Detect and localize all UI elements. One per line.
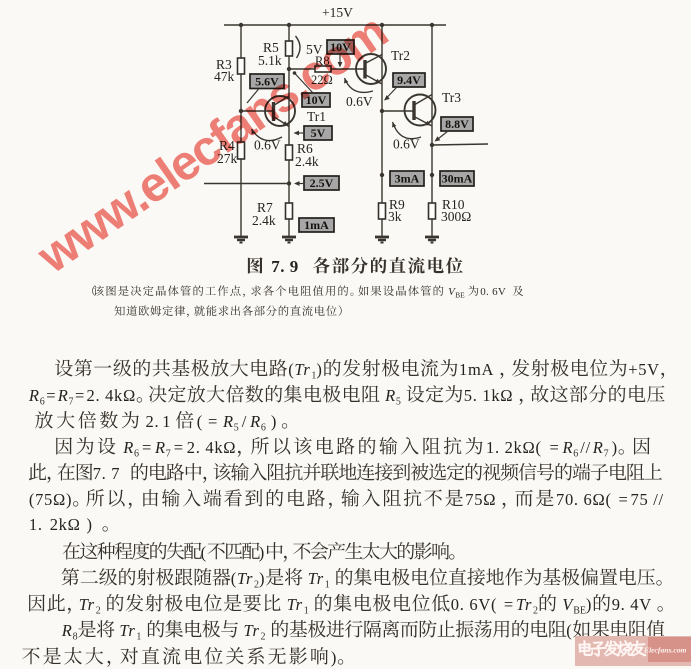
svg-text:Tr: Tr	[516, 595, 532, 614]
svg-text:R: R	[57, 386, 69, 405]
svg-text:8: 8	[73, 632, 78, 643]
svg-text:30mA: 30mA	[442, 172, 473, 186]
svg-text:Elecfans.com: Elecfans.com	[643, 646, 686, 655]
svg-text:5. 1kΩ: 5. 1kΩ	[464, 386, 513, 405]
svg-text:Tr: Tr	[287, 595, 303, 614]
svg-text:=: =	[208, 412, 218, 431]
svg-text:1. 2kΩ(: 1. 2kΩ(	[486, 438, 542, 457]
svg-text:7: 7	[604, 449, 609, 460]
svg-text:Tr3: Tr3	[442, 90, 461, 105]
svg-text:75Ω: 75Ω	[465, 490, 496, 509]
svg-text:Tr1: Tr1	[307, 109, 326, 124]
svg-text:R: R	[562, 438, 574, 457]
svg-text:=: =	[619, 490, 629, 509]
svg-text:(: (	[197, 412, 203, 431]
svg-text:): )	[316, 360, 322, 379]
svg-text:R: R	[384, 386, 396, 405]
svg-text:): )	[87, 515, 93, 534]
svg-text:Tr: Tr	[119, 621, 135, 640]
svg-text:=: =	[142, 438, 152, 457]
svg-text:R: R	[249, 412, 261, 431]
svg-text:=: =	[504, 595, 514, 614]
svg-text:R: R	[154, 438, 166, 457]
svg-text:(: (	[201, 543, 207, 562]
svg-text:70. 6Ω(: 70. 6Ω(	[556, 490, 612, 509]
svg-text:BE: BE	[455, 291, 465, 300]
svg-text:7: 7	[69, 397, 74, 408]
svg-text:=: =	[75, 386, 85, 405]
svg-text:6: 6	[40, 397, 45, 408]
svg-text:Tr: Tr	[79, 595, 95, 614]
svg-text:Tr: Tr	[244, 621, 260, 640]
svg-text:2: 2	[96, 606, 101, 617]
svg-text:1mA: 1mA	[304, 218, 329, 232]
svg-text:3k: 3k	[388, 209, 402, 224]
svg-text:2. 4kΩ: 2. 4kΩ	[187, 438, 236, 457]
svg-text:(: (	[566, 621, 572, 640]
svg-text://: //	[580, 438, 591, 457]
svg-text:Tr: Tr	[237, 569, 253, 588]
svg-text:1: 1	[325, 580, 330, 591]
svg-text:R: R	[61, 621, 73, 640]
svg-text:75 //: 75 //	[631, 490, 664, 509]
svg-text:R: R	[28, 386, 40, 405]
svg-text:): )	[586, 595, 592, 614]
svg-text:47k: 47k	[214, 69, 235, 84]
svg-text:6: 6	[573, 449, 578, 460]
svg-text:2.4k: 2.4k	[252, 213, 276, 228]
svg-text:1: 1	[162, 412, 171, 431]
svg-text:5: 5	[396, 397, 401, 408]
svg-text:R: R	[122, 438, 134, 457]
svg-text:1: 1	[304, 606, 309, 617]
svg-text:+5V: +5V	[628, 360, 660, 379]
svg-text:7: 7	[166, 449, 171, 460]
svg-text:2.5V: 2.5V	[310, 176, 334, 190]
svg-text:1: 1	[136, 632, 141, 643]
svg-text:R: R	[222, 412, 234, 431]
svg-text:): )	[271, 412, 277, 431]
svg-text:Tr: Tr	[308, 569, 324, 588]
svg-text:2. 4kΩ: 2. 4kΩ	[87, 386, 136, 405]
svg-text:7. 9: 7. 9	[271, 257, 299, 276]
svg-text:0. 6V(: 0. 6V(	[451, 595, 497, 614]
svg-text:1.: 1.	[29, 515, 43, 534]
svg-text:7. 7: 7. 7	[93, 464, 121, 483]
svg-text:R: R	[592, 438, 604, 457]
svg-text:(75Ω): (75Ω)	[29, 490, 72, 509]
svg-text:BE: BE	[573, 606, 586, 617]
svg-text:2kΩ: 2kΩ	[50, 515, 81, 534]
svg-text:=: =	[550, 438, 560, 457]
svg-text:0.6V: 0.6V	[393, 137, 420, 152]
svg-text:0.6V: 0.6V	[346, 94, 373, 109]
svg-text:5: 5	[234, 423, 239, 434]
svg-text:6: 6	[134, 449, 139, 460]
svg-text:Tr: Tr	[294, 360, 310, 379]
svg-text:9. 4V: 9. 4V	[612, 595, 652, 614]
svg-text:2.4k: 2.4k	[295, 154, 319, 169]
svg-text:=: =	[174, 438, 184, 457]
svg-text:0. 6V: 0. 6V	[480, 286, 506, 298]
svg-text:/: /	[242, 412, 247, 431]
svg-text:): )	[259, 569, 265, 588]
svg-text:2: 2	[261, 632, 266, 643]
svg-text:2: 2	[533, 606, 538, 617]
svg-text:): )	[612, 438, 618, 457]
svg-text:): )	[259, 543, 265, 562]
svg-text:6: 6	[261, 423, 266, 434]
svg-text:3mA: 3mA	[395, 172, 420, 186]
svg-text:5V: 5V	[311, 126, 326, 140]
svg-text:300Ω: 300Ω	[441, 209, 471, 224]
svg-text:8.8V: 8.8V	[445, 117, 469, 131]
svg-text:2.: 2.	[146, 412, 160, 431]
svg-text:1mA: 1mA	[459, 360, 494, 379]
svg-text:9.4V: 9.4V	[397, 73, 421, 87]
svg-text:): )	[331, 648, 337, 667]
svg-text:=: =	[46, 386, 56, 405]
